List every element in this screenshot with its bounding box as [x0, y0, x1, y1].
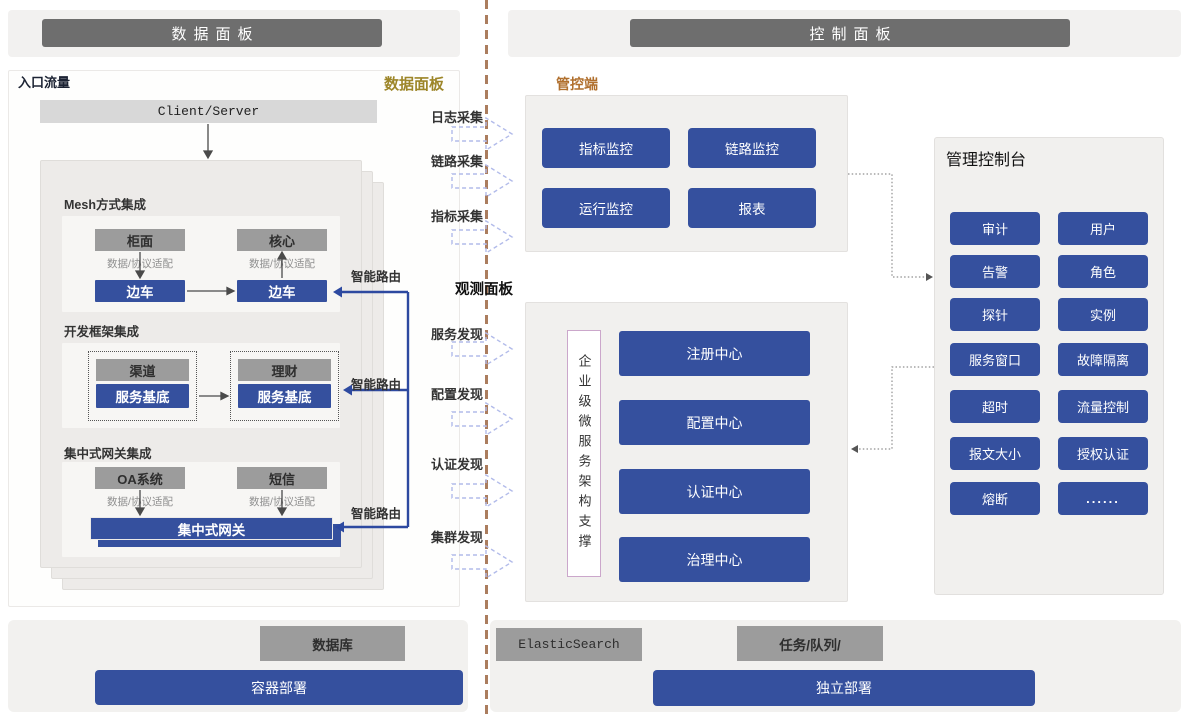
role-button: 角色 — [1058, 255, 1148, 288]
core-box: 核心 — [237, 229, 327, 251]
framework-section-title: 开发框架集成 — [64, 321, 139, 340]
wealth-box: 理财 — [238, 359, 331, 381]
log-collect-label: 日志采集 — [403, 107, 483, 126]
governance-center-bar: 治理中心 — [619, 537, 810, 582]
observe-panel-label: 观测面板 — [455, 278, 545, 299]
smart-route-label: 智能路由 — [351, 503, 401, 522]
circuit-break-button: 熔断 — [950, 482, 1040, 515]
management-end-box — [525, 95, 848, 252]
service-base-left: 服务基底 — [96, 384, 189, 408]
metric-collect-label: 指标采集 — [403, 206, 483, 225]
auth-discover-label: 认证发现 — [403, 454, 483, 473]
message-size-button: 报文大小 — [950, 437, 1040, 470]
mesh-section-title: Mesh方式集成 — [64, 194, 146, 213]
report-button: 报表 — [688, 188, 816, 228]
service-window-button: 服务窗口 — [950, 343, 1040, 376]
management-end-label: 管控端 — [556, 74, 598, 94]
ingress-traffic-label: 入口流量 — [18, 72, 70, 91]
fault-isolation-button: 故障隔离 — [1058, 343, 1148, 376]
trace-collect-label: 链路采集 — [403, 151, 483, 170]
registry-center-bar: 注册中心 — [619, 331, 810, 376]
more-ellipsis-button: ...... — [1058, 482, 1148, 515]
channel-box: 渠道 — [96, 359, 189, 381]
management-console-title: 管理控制台 — [946, 146, 1026, 170]
cluster-discover-label: 集群发现 — [403, 527, 483, 546]
standalone-deploy-bar: 独立部署 — [653, 670, 1035, 706]
sidecar-box-left: 边车 — [95, 280, 185, 302]
gateway-section-title: 集中式网关集成 — [64, 443, 152, 462]
adapter-label: 数据/协议适配 — [95, 256, 185, 271]
sidecar-box-right: 边车 — [237, 280, 327, 302]
adapter-label: 数据/协议适配 — [95, 494, 185, 509]
adapter-label: 数据/协议适配 — [237, 494, 327, 509]
dotted-connectors — [848, 174, 934, 449]
adapter-label: 数据/协议适配 — [237, 256, 327, 271]
gateway-bar: 集中式网关 — [90, 517, 333, 540]
data-plane-corner-label: 数据面板 — [352, 73, 444, 94]
dotted-connector-arrowheads — [851, 273, 933, 453]
metric-monitor-button: 指标监控 — [542, 128, 670, 168]
architecture-diagram: 数据面板 控制面板 入口流量 数据面板 Client/Server Mesh方式… — [0, 0, 1189, 720]
auth-center-bar: 认证中心 — [619, 469, 810, 514]
task-queue-box: 任务/队列/ — [737, 626, 883, 661]
runtime-monitor-button: 运行监控 — [542, 188, 670, 228]
auth-cert-button: 授权认证 — [1058, 437, 1148, 470]
trace-monitor-button: 链路监控 — [688, 128, 816, 168]
instance-button: 实例 — [1058, 298, 1148, 331]
oa-system-box: OA系统 — [95, 467, 185, 489]
alert-button: 告警 — [950, 255, 1040, 288]
dashed-block-arrows — [452, 118, 512, 578]
config-discover-label: 配置发现 — [403, 384, 483, 403]
container-deploy-bar: 容器部署 — [95, 670, 463, 705]
smart-route-label: 智能路由 — [351, 266, 401, 285]
probe-button: 探针 — [950, 298, 1040, 331]
config-center-bar: 配置中心 — [619, 400, 810, 445]
service-discover-label: 服务发现 — [403, 324, 483, 343]
counter-box: 柜面 — [95, 229, 185, 251]
plane-divider-dashed-line — [485, 0, 488, 720]
client-server-box: Client/Server — [40, 100, 377, 123]
user-button: 用户 — [1058, 212, 1148, 245]
audit-button: 审计 — [950, 212, 1040, 245]
smart-route-label: 智能路由 — [351, 374, 401, 393]
elasticsearch-box: ElasticSearch — [496, 628, 642, 661]
microservice-support-label: 企业级微服务架构支撑 — [567, 330, 601, 577]
service-base-right: 服务基底 — [238, 384, 331, 408]
flow-control-button: 流量控制 — [1058, 390, 1148, 423]
control-plane-header: 控制面板 — [630, 19, 1070, 47]
database-box: 数据库 — [260, 626, 405, 661]
timeout-button: 超时 — [950, 390, 1040, 423]
sms-box: 短信 — [237, 467, 327, 489]
data-plane-header: 数据面板 — [42, 19, 382, 47]
